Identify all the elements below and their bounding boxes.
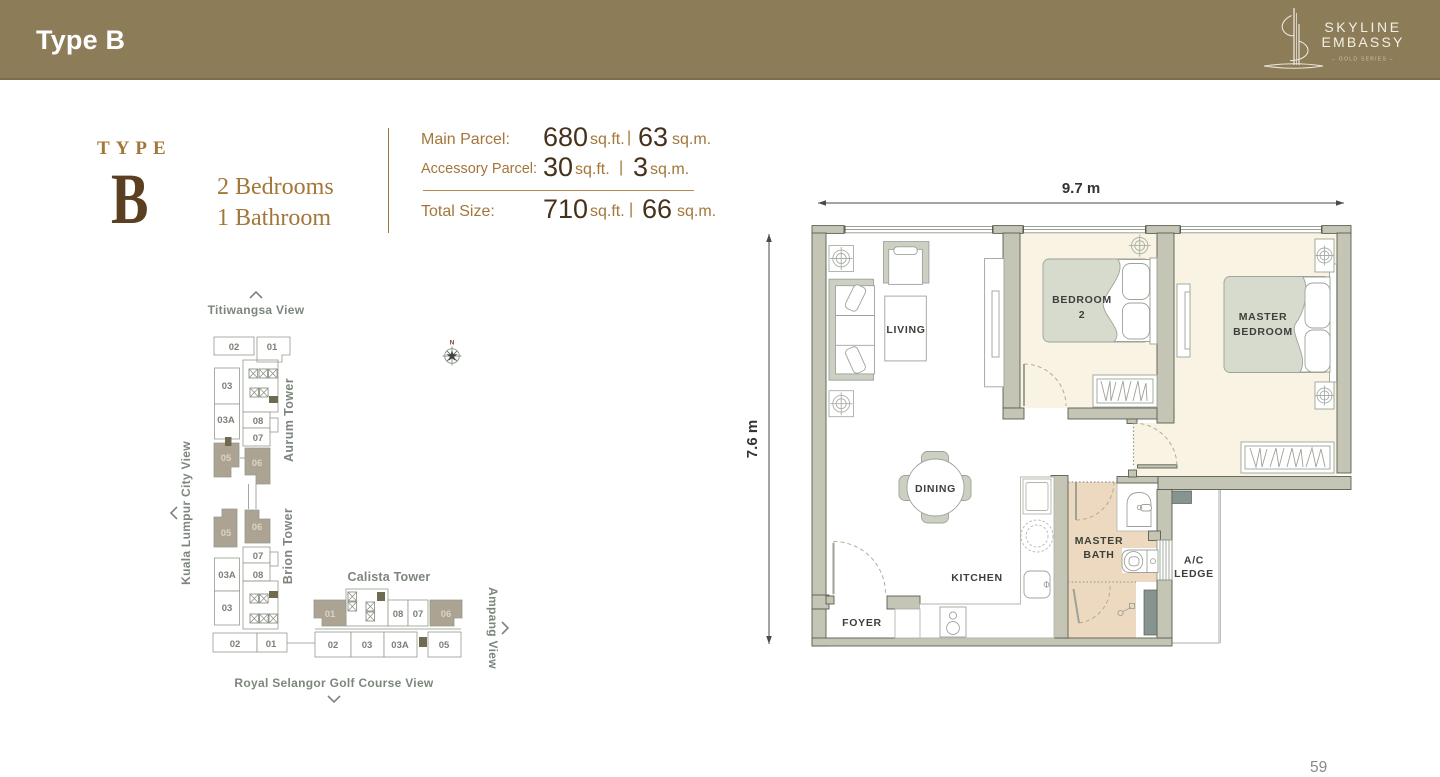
svg-text:07: 07	[253, 433, 264, 444]
svg-text:06: 06	[252, 522, 263, 533]
svg-text:07: 07	[253, 551, 264, 562]
svg-text:Calista Tower: Calista Tower	[348, 570, 431, 584]
svg-text:Royal Selangor Golf Course Vie: Royal Selangor Golf Course View	[234, 676, 433, 690]
svg-text:05: 05	[221, 528, 232, 539]
svg-text:06: 06	[441, 609, 452, 620]
svg-text:A/C: A/C	[1184, 555, 1204, 567]
svg-text:Aurum Tower: Aurum Tower	[282, 378, 296, 462]
svg-text:LIVING: LIVING	[886, 324, 925, 336]
svg-text:02: 02	[230, 639, 241, 650]
svg-text:03: 03	[222, 381, 233, 392]
svg-text:MASTER: MASTER	[1075, 535, 1124, 547]
svg-text:LEDGE: LEDGE	[1174, 568, 1214, 580]
svg-text:Ampang View: Ampang View	[486, 587, 500, 669]
svg-text:9.7 m: 9.7 m	[1062, 180, 1100, 197]
svg-text:BATH: BATH	[1083, 549, 1114, 561]
svg-text:2: 2	[1079, 309, 1086, 321]
svg-text:Titiwangsa View: Titiwangsa View	[208, 303, 305, 317]
svg-text:06: 06	[252, 458, 263, 469]
svg-text:– GOLD SERIES –: – GOLD SERIES –	[1332, 57, 1394, 63]
svg-text:03: 03	[362, 640, 373, 651]
svg-text:EMBASSY: EMBASSY	[1321, 34, 1404, 50]
svg-text:01: 01	[325, 609, 336, 620]
svg-text:08: 08	[253, 570, 264, 581]
svg-text:FOYER: FOYER	[842, 617, 882, 629]
svg-text:02: 02	[328, 640, 339, 651]
svg-text:03A: 03A	[218, 570, 236, 581]
svg-text:KITCHEN: KITCHEN	[951, 572, 1003, 584]
svg-text:7.6 m: 7.6 m	[744, 420, 761, 458]
svg-text:N: N	[450, 340, 455, 347]
svg-text:MASTER: MASTER	[1239, 311, 1288, 323]
svg-text:03: 03	[222, 603, 233, 614]
svg-text:Brion Tower: Brion Tower	[281, 508, 295, 584]
svg-text:Kuala Lumpur City View: Kuala Lumpur City View	[179, 441, 193, 585]
svg-text:05: 05	[439, 640, 450, 651]
svg-text:SKYLINE: SKYLINE	[1324, 19, 1401, 35]
svg-text:01: 01	[266, 639, 277, 650]
svg-text:03A: 03A	[217, 415, 235, 426]
svg-text:03A: 03A	[391, 640, 409, 651]
svg-text:02: 02	[229, 342, 240, 353]
svg-text:07: 07	[413, 609, 424, 620]
svg-text:08: 08	[393, 609, 404, 620]
svg-text:BEDROOM: BEDROOM	[1233, 326, 1293, 338]
svg-text:DINING: DINING	[915, 483, 956, 495]
svg-text:08: 08	[253, 416, 264, 427]
svg-text:BEDROOM: BEDROOM	[1052, 294, 1112, 306]
svg-text:01: 01	[267, 342, 278, 353]
svg-text:05: 05	[221, 453, 232, 464]
